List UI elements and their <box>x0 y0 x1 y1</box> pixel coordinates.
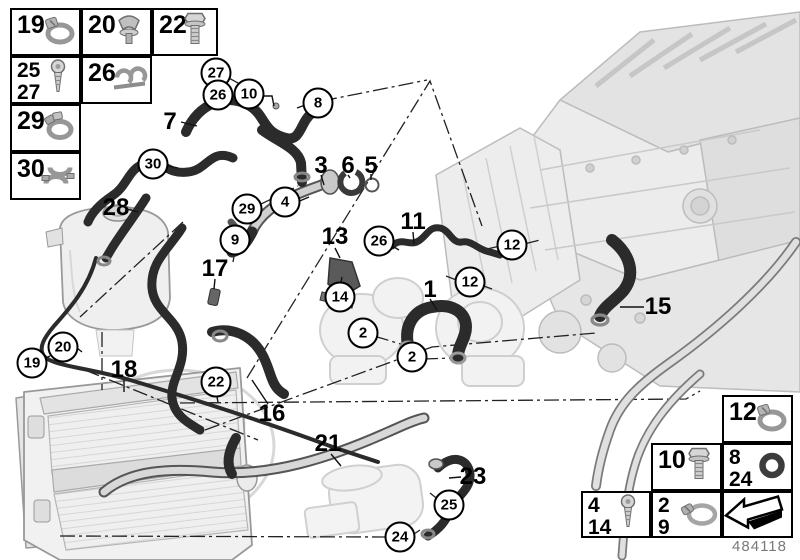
bolt-icon <box>679 445 719 490</box>
diagram-plate-number: 484118 <box>732 538 787 555</box>
radiator-illustration <box>16 368 257 560</box>
callout-2[interactable]: 2 <box>348 318 379 349</box>
legend-box-19[interactable]: 19 <box>10 8 81 56</box>
callout-15[interactable]: 15 <box>645 295 672 319</box>
callout-5[interactable]: 5 <box>364 154 377 178</box>
callout-26[interactable]: 26 <box>203 80 234 111</box>
callout-29[interactable]: 29 <box>232 194 263 225</box>
callout-21[interactable]: 21 <box>315 432 342 456</box>
callout-12[interactable]: 12 <box>497 230 528 261</box>
parts-diagram-page: 1920222527262930121082441429 27261087303… <box>0 0 800 560</box>
legend-box-12[interactable]: 12 <box>722 395 793 443</box>
worm-clamp-icon <box>679 492 719 537</box>
callout-20[interactable]: 20 <box>48 332 79 363</box>
direction-arrow-icon <box>724 491 791 538</box>
callout-10[interactable]: 10 <box>234 79 265 110</box>
callout-18[interactable]: 18 <box>111 358 138 382</box>
o-ring-5 <box>366 179 379 192</box>
callout-19[interactable]: 19 <box>17 348 48 379</box>
bracket-clamp-icon <box>38 154 78 199</box>
legend-box-2-9[interactable]: 29 <box>651 491 722 538</box>
legend-box-arrow[interactable] <box>722 491 793 538</box>
callout-23[interactable]: 23 <box>460 465 487 489</box>
callout-7[interactable]: 7 <box>163 110 176 134</box>
legend-box-26[interactable]: 26 <box>81 56 152 104</box>
legend-box-22[interactable]: 22 <box>152 8 218 56</box>
holder-clip-icon <box>109 58 149 103</box>
callout-24[interactable]: 24 <box>385 522 416 553</box>
legend-box-label: 2527 <box>17 60 40 104</box>
screw-icon <box>38 58 78 103</box>
callout-1[interactable]: 1 <box>423 278 436 302</box>
bolt-icon <box>175 10 215 55</box>
callout-26[interactable]: 26 <box>364 226 395 257</box>
legend-box-label: 29 <box>658 495 670 539</box>
callout-16[interactable]: 16 <box>259 402 286 426</box>
hose-clamp-icon <box>750 397 790 442</box>
callout-12[interactable]: 12 <box>455 267 486 298</box>
spring-clamp-icon <box>38 106 78 151</box>
callout-9[interactable]: 9 <box>220 225 251 256</box>
callout-11[interactable]: 11 <box>400 210 425 234</box>
legend-box-label: 824 <box>729 447 752 491</box>
legend-box-4-14[interactable]: 414 <box>581 491 651 538</box>
legend-box-25-27[interactable]: 2527 <box>10 56 81 104</box>
callout-25[interactable]: 25 <box>434 490 465 521</box>
callout-6[interactable]: 6 <box>341 154 354 178</box>
callout-17[interactable]: 17 <box>202 257 229 281</box>
legend-box-10[interactable]: 10 <box>651 443 722 491</box>
legend-box-29[interactable]: 29 <box>10 104 81 152</box>
screw-icon <box>608 492 648 537</box>
o-ring-icon <box>750 445 790 490</box>
callout-3[interactable]: 3 <box>314 154 327 178</box>
expanding-clip-icon <box>109 10 149 55</box>
callout-4[interactable]: 4 <box>270 187 301 218</box>
callout-13[interactable]: 13 <box>322 225 349 249</box>
callout-28[interactable]: 28 <box>103 196 130 220</box>
callout-2[interactable]: 2 <box>397 342 428 373</box>
callout-30[interactable]: 30 <box>138 149 169 180</box>
legend-box-20[interactable]: 20 <box>81 8 152 56</box>
callout-8[interactable]: 8 <box>303 88 334 119</box>
callout-22[interactable]: 22 <box>201 367 232 398</box>
clip-17 <box>207 288 220 306</box>
hose-clamp-icon <box>38 10 78 55</box>
legend-box-30[interactable]: 30 <box>10 152 81 200</box>
legend-box-8-24[interactable]: 824 <box>722 443 793 491</box>
callout-14[interactable]: 14 <box>325 282 356 313</box>
